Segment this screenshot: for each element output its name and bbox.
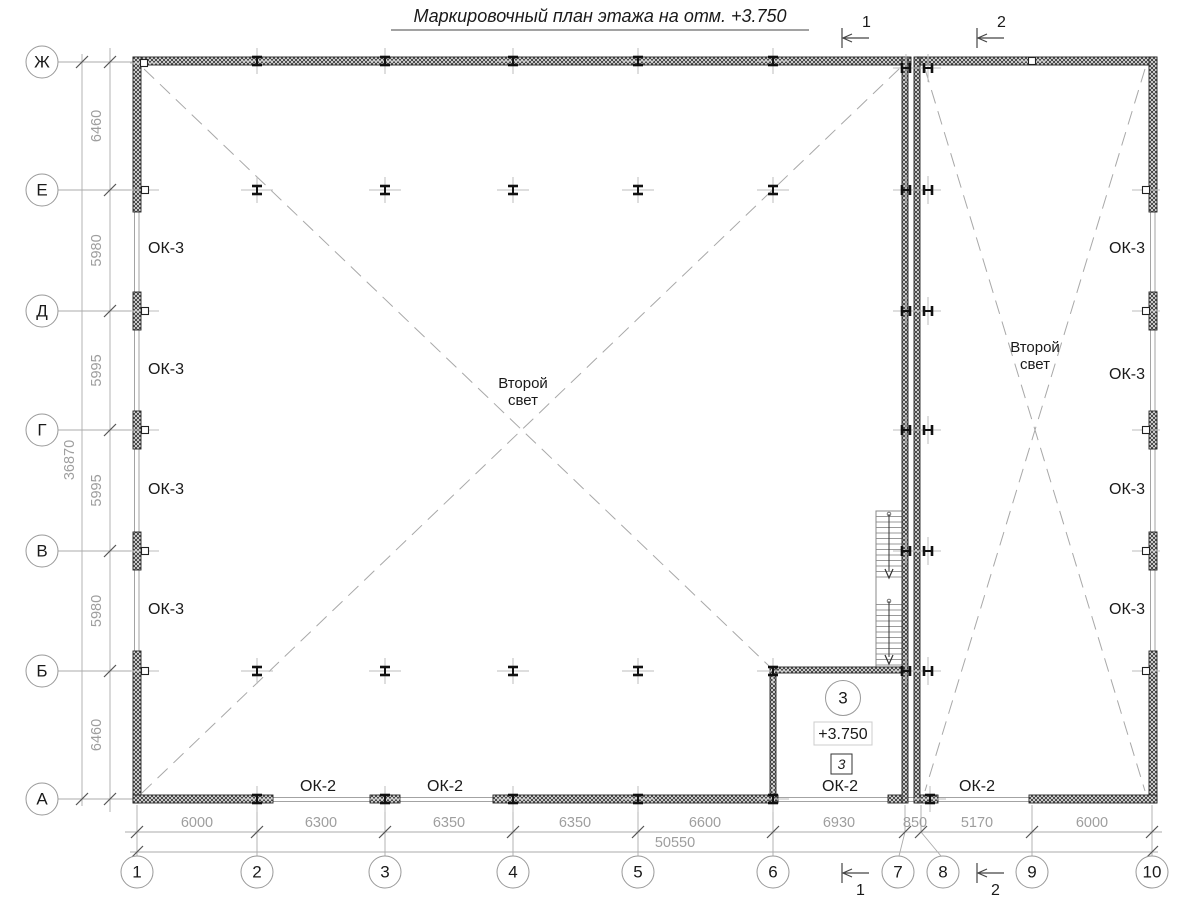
floor-plan-drawing: Маркировочный план этажа на отм. +3.750 — [0, 0, 1200, 900]
row-axis-b: Б — [36, 662, 47, 681]
column-icon — [241, 48, 273, 74]
column-icon — [369, 786, 401, 812]
window-label-ok2: ОК-2 — [427, 778, 463, 795]
dim-bottom-1: 6000 — [181, 815, 213, 831]
dim-bottom-2: 6300 — [305, 815, 337, 831]
room-tag: 3 — [838, 756, 846, 772]
col-axis-9: 9 — [1027, 863, 1036, 882]
column-icon — [497, 658, 529, 684]
window-label-ok2: ОК-2 — [959, 778, 995, 795]
stairs — [876, 511, 902, 668]
section-arrow-icon — [977, 28, 1004, 48]
window-label-ok3: ОК-3 — [1109, 240, 1145, 257]
dim-bottom-8: 5170 — [961, 815, 993, 831]
page-title: Маркировочный план этажа на отм. +3.750 — [413, 6, 786, 26]
second-light-diagonals — [142, 69, 1145, 793]
column-icon — [369, 48, 401, 74]
col-axis-5: 5 — [633, 863, 642, 882]
column-icon — [497, 786, 529, 812]
axis-bubbles-bottom: 1 2 3 4 5 6 7 8 9 10 — [121, 856, 1168, 888]
dim-left-5: 5980 — [89, 595, 105, 627]
window-label-ok2: ОК-2 — [300, 778, 336, 795]
dim-bottom-5: 6600 — [689, 815, 721, 831]
dim-bottom-9: 6000 — [1076, 815, 1108, 831]
wall-left-upper — [133, 57, 141, 212]
col-axis-6: 6 — [768, 863, 777, 882]
row-axis-g: Г — [37, 421, 46, 440]
col-axis-4: 4 — [508, 863, 517, 882]
walls — [133, 57, 1157, 803]
wall-right-lower — [1149, 651, 1157, 803]
room-3-wall-top — [770, 667, 904, 673]
dim-left-2: 5980 — [89, 234, 105, 266]
row-axis-a: А — [36, 790, 48, 809]
dimension-grid — [58, 48, 1162, 856]
row-axis-v: В — [36, 542, 47, 561]
col-axis-8: 8 — [938, 863, 947, 882]
column-icon — [622, 658, 654, 684]
section-marks: 1 2 1 2 — [842, 14, 1006, 899]
dimension-texts: 6460 5980 5995 5995 5980 6460 36870 6000… — [62, 110, 1108, 851]
window-label-ok3: ОК-3 — [1109, 481, 1145, 498]
dim-bottom-total: 50550 — [655, 835, 695, 851]
dim-bottom-4: 6350 — [559, 815, 591, 831]
column-icon — [241, 177, 273, 203]
wall-left-lower — [133, 651, 141, 803]
room-3: 3 +3.750 3 — [814, 681, 872, 775]
column-icon — [369, 177, 401, 203]
title-block: Маркировочный план этажа на отм. +3.750 — [391, 6, 809, 30]
column-icon — [497, 177, 529, 203]
room-3-wall-left — [770, 667, 776, 803]
dimension-ticks — [76, 56, 1158, 858]
dim-left-6: 6460 — [89, 719, 105, 751]
column-icon — [241, 658, 273, 684]
col-axis-10: 10 — [1143, 863, 1162, 882]
window-labels: ОК-3 ОК-3 ОК-3 ОК-3 ОК-3 ОК-3 ОК-3 ОК-3 … — [148, 240, 1145, 795]
wall-bottom-3 — [1029, 795, 1157, 803]
dim-bottom-7: 850 — [903, 815, 927, 831]
dim-bottom-6: 6930 — [823, 815, 855, 831]
section-mark-2-bottom: 2 — [991, 882, 1000, 899]
col-axis-2: 2 — [252, 863, 261, 882]
second-light-label: Второй — [1010, 339, 1060, 356]
wall-right-upper — [1149, 57, 1157, 212]
window-label-ok3: ОК-3 — [1109, 366, 1145, 383]
row-axis-e: Е — [36, 181, 47, 200]
column-icon — [757, 177, 789, 203]
second-light-label: свет — [508, 392, 538, 409]
column-icon — [757, 786, 789, 812]
column-icon — [369, 658, 401, 684]
dim-left-total: 36870 — [62, 440, 78, 480]
column-icon — [241, 786, 273, 812]
dim-bottom-3: 6350 — [433, 815, 465, 831]
floor-plan-page: Маркировочный план этажа на отм. +3.750 — [0, 0, 1200, 900]
columns — [130, 48, 1160, 812]
column-icon — [497, 48, 529, 74]
room-number: 3 — [838, 689, 847, 708]
window-label-ok3: ОК-3 — [148, 601, 184, 618]
dim-left-3: 5995 — [89, 354, 105, 386]
row-axis-d: Д — [36, 302, 48, 321]
window-label-ok3: ОК-3 — [1109, 601, 1145, 618]
col-axis-3: 3 — [380, 863, 389, 882]
section-arrow-icon — [977, 863, 1004, 883]
dim-left-4: 5995 — [89, 474, 105, 506]
column-icon — [757, 48, 789, 74]
axis-bubbles-left: Ж Е Д Г В Б А — [26, 46, 58, 815]
dim-left-1: 6460 — [89, 110, 105, 142]
elevation-label: +3.750 — [818, 726, 867, 743]
column-icon — [622, 177, 654, 203]
second-light-label: Второй — [498, 375, 548, 392]
col-axis-7: 7 — [893, 863, 902, 882]
second-light-labels: Второй свет Второй свет — [498, 339, 1060, 409]
window-label-ok3: ОК-3 — [148, 240, 184, 257]
col-axis-1: 1 — [132, 863, 141, 882]
window-label-ok3: ОК-3 — [148, 361, 184, 378]
section-mark-1-top: 1 — [862, 14, 871, 31]
column-icon — [622, 48, 654, 74]
section-mark-1-bottom: 1 — [856, 882, 865, 899]
column-icon — [622, 786, 654, 812]
section-mark-2-top: 2 — [997, 14, 1006, 31]
row-axis-zh: Ж — [34, 53, 50, 72]
window-label-ok2: ОК-2 — [822, 778, 858, 795]
section-arrow-icon — [842, 28, 869, 48]
window-bands — [135, 66, 1156, 802]
section-arrow-icon — [842, 863, 869, 883]
window-label-ok3: ОК-3 — [148, 481, 184, 498]
second-light-label: свет — [1020, 356, 1050, 373]
column-icon — [757, 658, 789, 684]
